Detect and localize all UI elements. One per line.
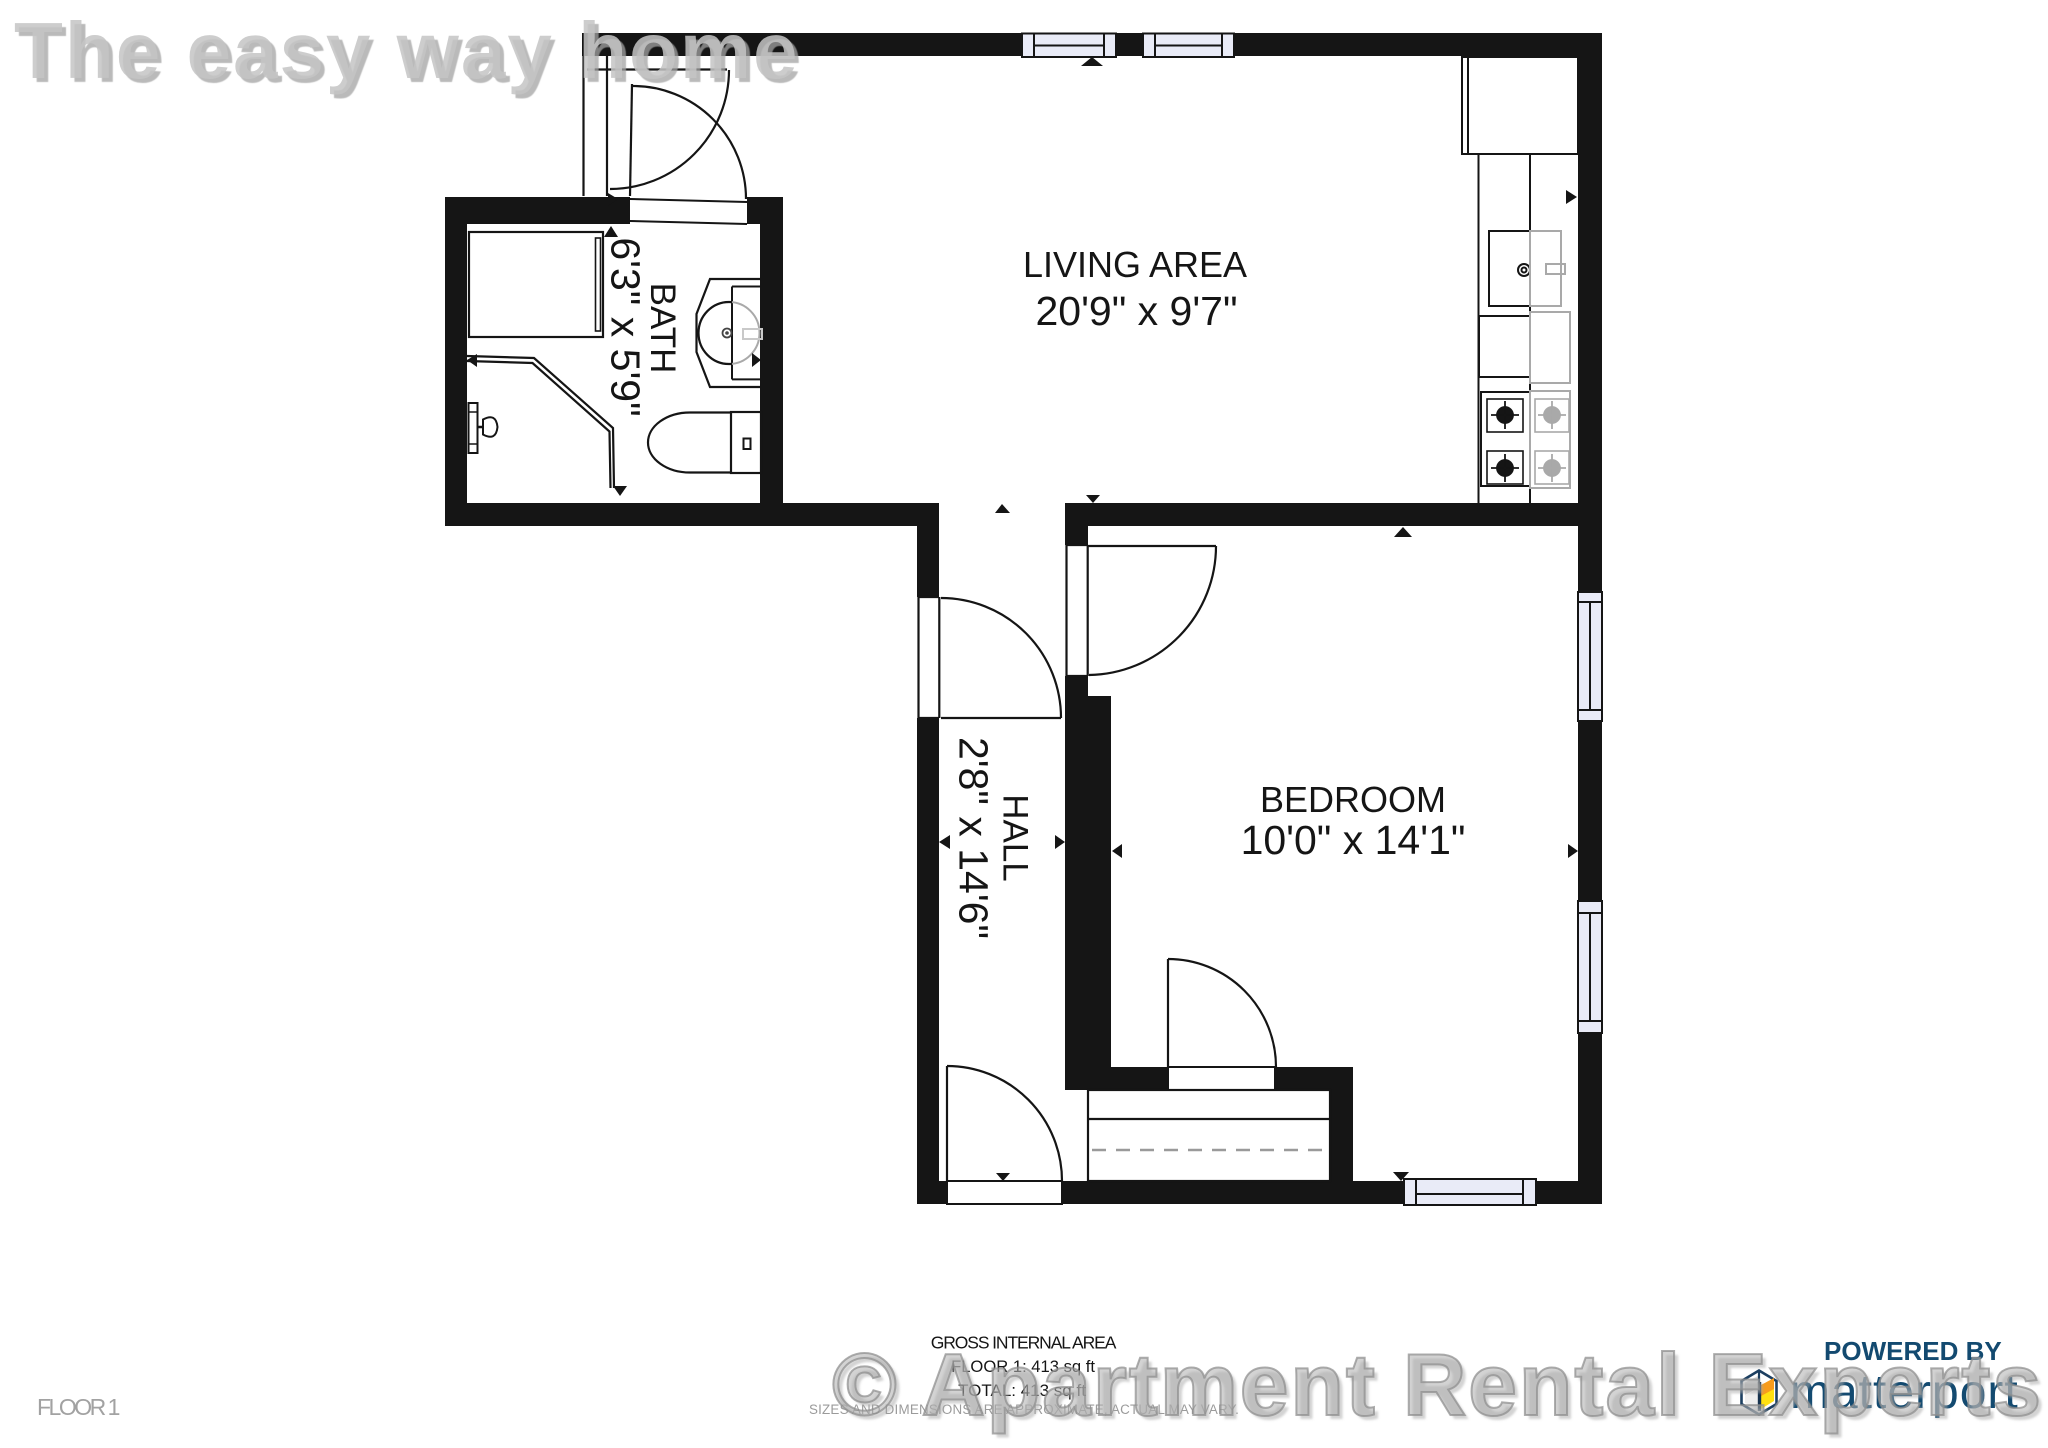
svg-text:HALL: HALL bbox=[996, 794, 1035, 882]
svg-text:LIVING AREA: LIVING AREA bbox=[1023, 244, 1247, 285]
svg-text:20'9" x 9'7": 20'9" x 9'7" bbox=[1035, 288, 1237, 334]
svg-text:6'3" x 5'9": 6'3" x 5'9" bbox=[603, 237, 649, 416]
svg-text:2'8" x 14'6": 2'8" x 14'6" bbox=[951, 737, 997, 939]
svg-text:FLOOR 1: FLOOR 1 bbox=[37, 1394, 120, 1420]
svg-text:BEDROOM: BEDROOM bbox=[1260, 779, 1446, 820]
svg-text:10'0" x 14'1": 10'0" x 14'1" bbox=[1241, 817, 1466, 863]
